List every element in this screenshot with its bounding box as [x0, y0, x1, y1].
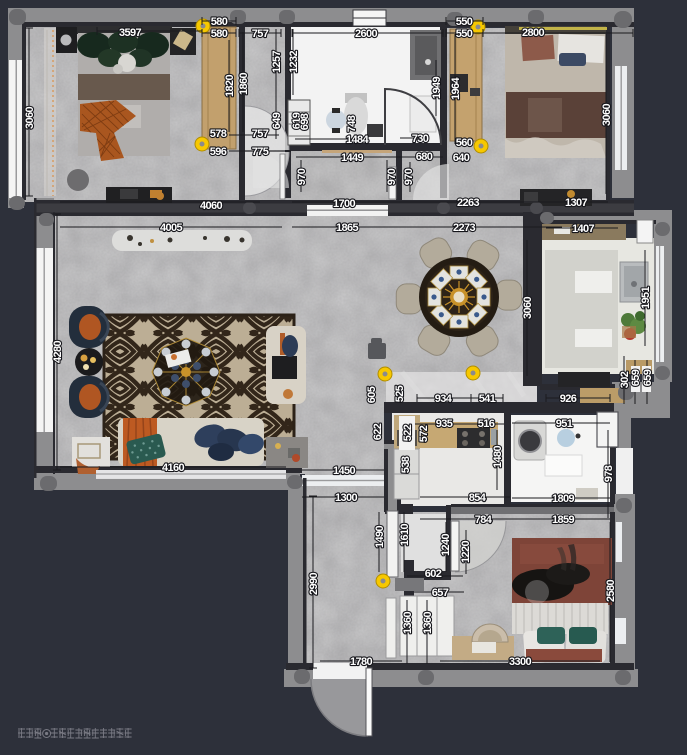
- svg-text:2273: 2273: [453, 222, 476, 234]
- svg-text:2600: 2600: [355, 28, 378, 40]
- svg-text:1300: 1300: [335, 492, 358, 504]
- svg-text:4280: 4280: [52, 340, 64, 363]
- svg-text:541: 541: [479, 393, 496, 405]
- svg-text:978: 978: [603, 465, 615, 482]
- svg-text:970: 970: [386, 168, 398, 185]
- svg-text:572: 572: [418, 425, 430, 442]
- svg-text:4160: 4160: [162, 462, 185, 474]
- svg-text:784: 784: [475, 514, 493, 526]
- svg-text:757: 757: [252, 28, 269, 40]
- svg-text:622: 622: [372, 423, 384, 440]
- svg-text:516: 516: [478, 418, 495, 430]
- svg-text:596: 596: [210, 146, 227, 158]
- svg-text:970: 970: [296, 168, 308, 185]
- svg-text:659: 659: [642, 369, 654, 386]
- svg-text:659: 659: [630, 369, 642, 386]
- svg-text:657: 657: [432, 587, 449, 599]
- svg-text:605: 605: [366, 386, 378, 403]
- svg-text:1240: 1240: [440, 533, 452, 556]
- svg-text:525: 525: [394, 385, 406, 402]
- svg-text:580: 580: [211, 16, 228, 28]
- svg-text:970: 970: [403, 168, 415, 185]
- svg-text:775: 775: [252, 146, 269, 158]
- svg-text:640: 640: [453, 152, 470, 164]
- svg-text:3060: 3060: [522, 296, 534, 319]
- svg-text:649: 649: [271, 112, 283, 129]
- svg-text:3060: 3060: [24, 106, 36, 129]
- svg-text:522: 522: [402, 424, 414, 441]
- svg-text:578: 578: [210, 128, 227, 140]
- svg-text:935: 935: [436, 418, 453, 430]
- svg-text:934: 934: [435, 393, 453, 405]
- svg-text:560: 560: [456, 137, 473, 149]
- svg-text:3597: 3597: [119, 27, 142, 39]
- svg-text:602: 602: [425, 568, 442, 580]
- svg-text:1610: 1610: [399, 523, 411, 546]
- svg-text:538: 538: [400, 456, 412, 473]
- svg-text:1480: 1480: [492, 445, 504, 468]
- svg-text:757: 757: [252, 128, 269, 140]
- svg-text:680: 680: [416, 151, 433, 163]
- svg-text:1232: 1232: [288, 50, 300, 73]
- svg-text:951: 951: [556, 418, 573, 430]
- svg-text:1484: 1484: [346, 134, 370, 146]
- svg-text:854: 854: [469, 492, 487, 504]
- svg-text:1257: 1257: [271, 50, 283, 73]
- svg-text:1220: 1220: [460, 540, 472, 563]
- svg-text:2580: 2580: [605, 579, 617, 602]
- svg-text:1360: 1360: [402, 611, 414, 634]
- svg-text:2990: 2990: [308, 572, 320, 595]
- svg-text:1964: 1964: [450, 76, 462, 100]
- svg-text:1449: 1449: [341, 152, 364, 164]
- svg-text:748: 748: [346, 115, 358, 132]
- svg-text:2263: 2263: [457, 197, 480, 209]
- svg-text:1490: 1490: [374, 525, 386, 548]
- svg-text:4005: 4005: [160, 222, 183, 234]
- svg-text:1949: 1949: [431, 76, 443, 99]
- svg-text:550: 550: [456, 28, 473, 40]
- svg-text:4060: 4060: [200, 200, 223, 212]
- svg-text:550: 550: [456, 16, 473, 28]
- svg-text:3300: 3300: [509, 656, 532, 668]
- svg-text:1307: 1307: [565, 197, 588, 209]
- svg-text:1407: 1407: [572, 223, 595, 235]
- svg-text:1865: 1865: [336, 222, 359, 234]
- svg-text:1780: 1780: [350, 656, 373, 668]
- svg-text:1360: 1360: [422, 611, 434, 634]
- svg-text:1951: 1951: [640, 286, 652, 309]
- svg-text:1820: 1820: [224, 74, 236, 97]
- svg-text:3060: 3060: [601, 103, 613, 126]
- svg-text:730: 730: [412, 133, 429, 145]
- svg-text:2800: 2800: [522, 27, 545, 39]
- svg-text:302: 302: [619, 371, 631, 388]
- svg-text:1809: 1809: [552, 493, 575, 505]
- svg-text:926: 926: [560, 393, 577, 405]
- svg-text:698: 698: [299, 113, 311, 130]
- svg-text:1700: 1700: [333, 198, 356, 210]
- svg-text:1450: 1450: [333, 465, 356, 477]
- svg-text:580: 580: [211, 28, 228, 40]
- svg-text:1859: 1859: [552, 514, 575, 526]
- svg-text:1860: 1860: [238, 72, 250, 95]
